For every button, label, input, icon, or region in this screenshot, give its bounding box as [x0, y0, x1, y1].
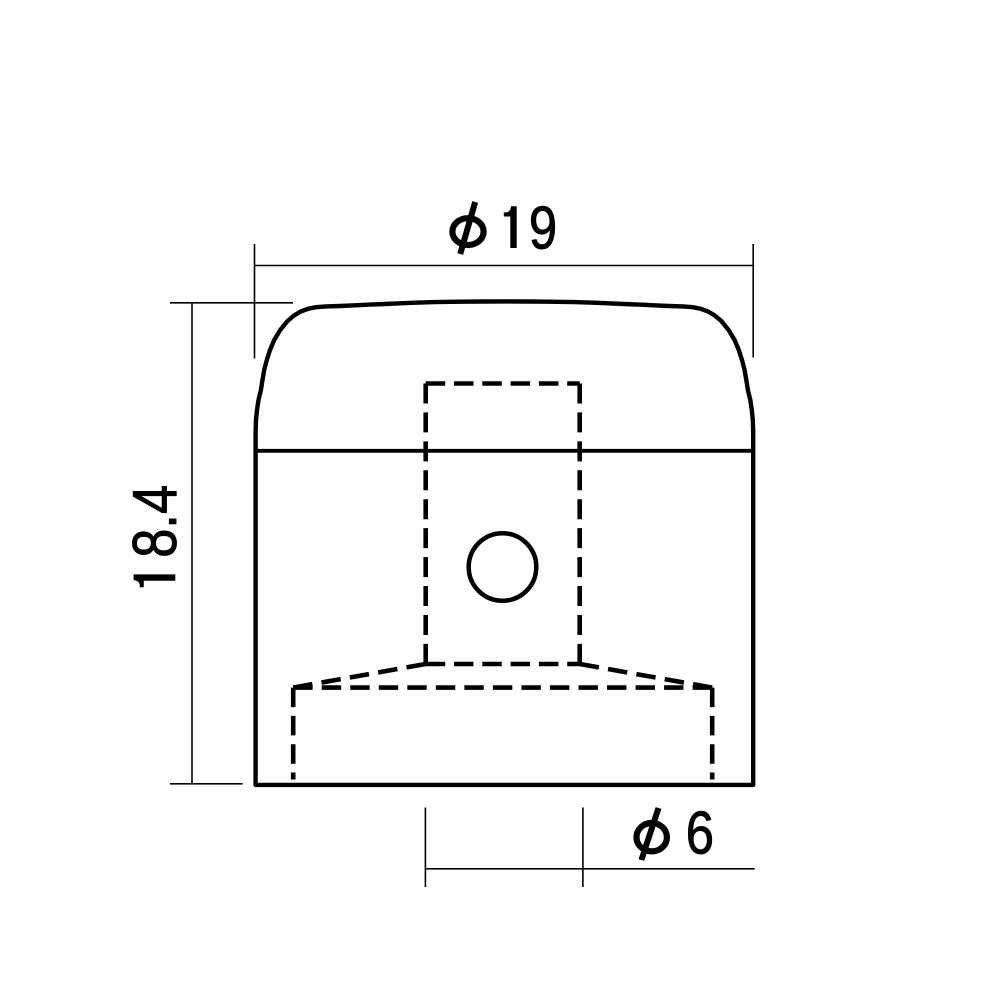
svg-text:8.4: 8.4	[121, 485, 190, 558]
svg-text:9: 9	[529, 193, 557, 261]
svg-text:6: 6	[686, 798, 714, 866]
